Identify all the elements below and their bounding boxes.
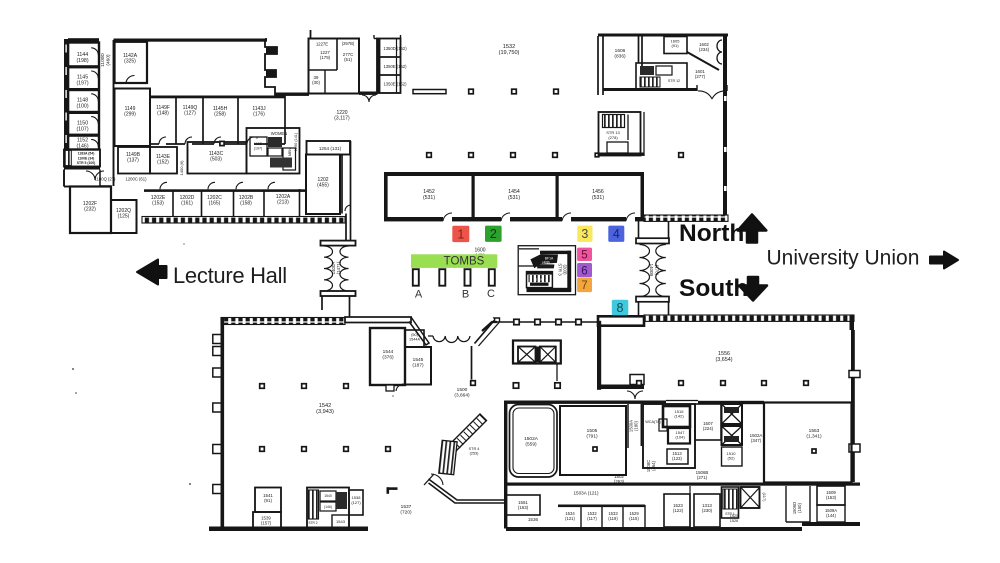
svg-text:ST3A: ST3A	[535, 278, 543, 282]
svg-text:C: C	[487, 288, 495, 300]
svg-text:1545: 1545	[413, 357, 424, 363]
svg-text:6: 6	[581, 265, 587, 277]
svg-text:(325): (325)	[124, 59, 136, 65]
svg-text:(157): (157)	[261, 521, 272, 526]
svg-text:(121): (121)	[565, 516, 575, 521]
svg-text:(376): (376)	[382, 354, 394, 360]
svg-text:(150): (150)	[797, 503, 802, 513]
svg-text:STR 3: STR 3	[558, 263, 563, 276]
svg-text:(30): (30)	[312, 80, 320, 85]
svg-text:WOMEN: WOMEN	[271, 131, 288, 136]
svg-text:1500: 1500	[457, 387, 468, 393]
svg-text:1183A (54): 1183A (54)	[78, 152, 95, 156]
svg-text:(127): (127)	[184, 111, 196, 117]
svg-text:(179): (179)	[320, 55, 331, 60]
svg-text:1505: 1505	[587, 428, 598, 434]
svg-text:(455): (455)	[317, 183, 329, 189]
svg-text:(163): (163)	[518, 505, 529, 510]
svg-text:1: 1	[457, 227, 464, 241]
svg-text:1100D: 1100D	[100, 53, 106, 67]
svg-text:8: 8	[617, 301, 624, 315]
svg-text:4: 4	[613, 227, 620, 241]
svg-text:(3,664): (3,664)	[454, 392, 470, 398]
svg-text:1254 (131): 1254 (131)	[319, 146, 342, 151]
svg-text:1532: 1532	[503, 44, 515, 50]
svg-text:(278): (278)	[608, 135, 618, 140]
svg-text:1553: 1553	[809, 428, 820, 434]
svg-text:(146): (146)	[324, 505, 332, 509]
svg-text:(153): (153)	[152, 201, 164, 207]
svg-text:(197): (197)	[254, 147, 262, 151]
svg-text:(123): (123)	[672, 456, 682, 461]
svg-text:(299): (299)	[124, 112, 136, 118]
svg-text:TOMBS: TOMBS	[444, 255, 485, 267]
svg-text:(1,341): (1,341)	[806, 433, 822, 439]
svg-text:(559): (559)	[525, 441, 537, 447]
svg-text:(122): (122)	[673, 508, 684, 513]
svg-text:115E: 115E	[254, 142, 263, 146]
svg-text:(464): (464)	[651, 461, 656, 471]
svg-text:5: 5	[581, 249, 587, 261]
svg-text:(115): (115)	[629, 516, 639, 521]
svg-text:North: North	[679, 220, 744, 247]
svg-text:(127): (127)	[351, 500, 361, 505]
svg-text:7: 7	[581, 280, 587, 292]
svg-text:(198): (198)	[76, 58, 88, 64]
svg-text:1542: 1542	[319, 403, 331, 409]
svg-text:1350D (152): 1350D (152)	[383, 46, 407, 51]
svg-text:(100): (100)	[76, 103, 88, 109]
svg-text:(3,117): (3,117)	[334, 116, 350, 122]
svg-text:(720): (720)	[400, 509, 412, 515]
svg-text:(180): (180)	[634, 421, 639, 431]
svg-text:1536: 1536	[528, 517, 539, 522]
svg-text:(144): (144)	[826, 513, 836, 518]
svg-text:1606: 1606	[615, 48, 626, 54]
svg-text:1543: 1543	[336, 519, 346, 524]
svg-text:(165): (165)	[209, 201, 221, 207]
svg-text:(253): (253)	[470, 452, 480, 456]
svg-text:STR 4: STR 4	[469, 447, 480, 451]
svg-text:University Union: University Union	[767, 247, 920, 270]
svg-text:(531): (531)	[592, 195, 604, 201]
svg-text:1544A: 1544A	[409, 338, 420, 342]
svg-text:1525: 1525	[730, 514, 738, 518]
svg-text:(503): (503)	[210, 157, 222, 163]
svg-text:1350E (152): 1350E (152)	[383, 64, 407, 69]
svg-text:(152): (152)	[157, 160, 169, 166]
svg-text:(234): (234)	[699, 47, 710, 52]
svg-text:1502A: 1502A	[524, 436, 539, 442]
svg-text:(224): (224)	[703, 426, 714, 431]
svg-text:(158): (158)	[240, 201, 252, 207]
svg-text:MEN: MEN	[288, 148, 292, 156]
svg-text:(50): (50)	[411, 333, 418, 337]
svg-text:1503A (121): 1503A (121)	[573, 491, 599, 496]
svg-text:STR 12: STR 12	[668, 79, 680, 83]
svg-text:(125): (125)	[118, 214, 130, 220]
svg-text:STR 2: STR 2	[308, 521, 317, 525]
svg-text:(19,750): (19,750)	[499, 50, 520, 56]
svg-text:1200C (61): 1200C (61)	[126, 177, 148, 182]
svg-text:South: South	[679, 275, 748, 302]
svg-text:(178): (178)	[655, 265, 660, 276]
svg-text:Lecture Hall: Lecture Hall	[173, 263, 287, 288]
svg-text:1537: 1537	[401, 504, 412, 510]
svg-text:(197): (197)	[76, 80, 88, 86]
svg-text:(347): (347)	[751, 438, 762, 443]
svg-text:1400 (6): 1400 (6)	[179, 160, 184, 176]
svg-text:(187): (187)	[412, 362, 424, 368]
svg-text:(91): (91)	[671, 43, 679, 48]
svg-text:(213): (213)	[277, 200, 289, 206]
svg-text:(117): (117)	[762, 492, 767, 502]
svg-text:(836): (836)	[614, 53, 626, 59]
svg-text:1350E (152): 1350E (152)	[383, 82, 407, 87]
svg-text:(297B): (297B)	[342, 41, 355, 46]
svg-text:(153): (153)	[826, 495, 837, 500]
svg-text:(460): (460)	[106, 54, 112, 66]
svg-text:A: A	[415, 289, 423, 301]
svg-text:(137): (137)	[127, 158, 139, 164]
svg-text:B: B	[462, 289, 469, 301]
svg-text:(119): (119)	[608, 516, 618, 521]
svg-text:(142): (142)	[674, 414, 684, 419]
svg-text:(104): (104)	[675, 435, 685, 440]
svg-text:1227E: 1227E	[316, 42, 328, 47]
svg-text:(791): (791)	[586, 433, 598, 439]
svg-text:(148): (148)	[157, 111, 169, 117]
svg-text:1544: 1544	[383, 349, 394, 355]
svg-text:1100E (34): 1100E (34)	[78, 156, 95, 160]
svg-text:1540: 1540	[324, 494, 332, 498]
svg-text:(408): (408)	[542, 260, 549, 264]
svg-text:1400B: 1400B	[649, 264, 654, 277]
svg-text:1290 (141): 1290 (141)	[294, 132, 298, 151]
svg-text:(52): (52)	[727, 456, 735, 461]
svg-text:(107): (107)	[76, 126, 88, 132]
svg-text:(51): (51)	[344, 57, 352, 62]
svg-text:(3,943): (3,943)	[316, 409, 334, 415]
svg-text:(277): (277)	[695, 74, 706, 79]
svg-text:(3,654): (3,654)	[715, 357, 732, 363]
svg-text:1526: 1526	[730, 519, 738, 523]
svg-text:(176): (176)	[253, 112, 265, 118]
svg-text:(230): (230)	[702, 508, 713, 513]
svg-text:(117): (117)	[587, 516, 597, 521]
svg-text:(271): (271)	[697, 475, 708, 480]
svg-text:(258): (258)	[214, 112, 226, 118]
svg-text:(1471): (1471)	[336, 261, 341, 274]
svg-text:STR 5 (100): STR 5 (100)	[77, 161, 95, 165]
svg-text:(531): (531)	[508, 195, 520, 201]
svg-text:2: 2	[490, 227, 497, 241]
svg-text:(232): (232)	[84, 207, 96, 213]
svg-text:(531): (531)	[423, 195, 435, 201]
svg-text:1100Q (27): 1100Q (27)	[95, 177, 116, 182]
svg-text:(203): (203)	[563, 264, 568, 275]
svg-text:(91): (91)	[264, 498, 272, 503]
svg-text:(146): (146)	[76, 143, 88, 149]
svg-text:(161): (161)	[181, 201, 193, 207]
svg-text:3: 3	[581, 227, 588, 241]
